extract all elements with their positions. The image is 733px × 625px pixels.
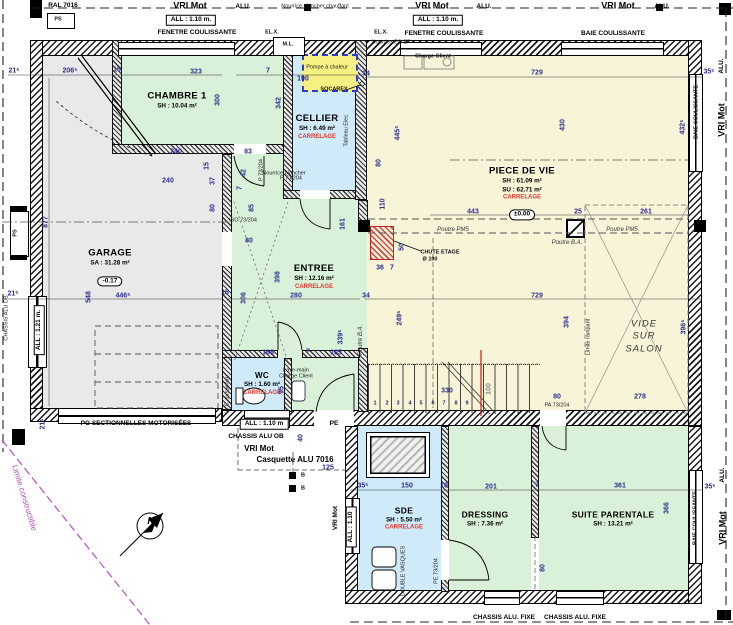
small-label: Ø 100 xyxy=(423,257,438,263)
dimension-label: 35⁵ xyxy=(704,484,715,491)
dimension-label: 300 xyxy=(215,94,222,106)
dimension-label: 394 xyxy=(564,316,571,328)
room-area-text: SH : 13.21 m² xyxy=(572,520,655,528)
dimension-label: 7 xyxy=(390,265,394,272)
dimension-label: 339⁵ xyxy=(338,330,345,345)
dimension-label: 7 xyxy=(237,186,244,190)
small-label: Charge Client xyxy=(279,374,313,380)
room-label-suite-parentale: SUITE PARENTALE SH : 13.21 m² xyxy=(572,509,655,528)
room-area-text: SA : 31.28 m² xyxy=(88,260,132,268)
room-label-wc: WC SH : 1.60 m² CARRELAGE xyxy=(243,371,281,397)
label: Casquette ALU 7016 xyxy=(256,456,333,464)
room-level-badge: ±0.00 xyxy=(509,210,535,220)
dimension-label: 445⁵ xyxy=(395,126,402,141)
stair-step-number: 5 xyxy=(419,401,422,407)
room-name: SDE xyxy=(385,505,423,516)
dimension-label: 21⁵ xyxy=(40,418,47,429)
room-floor-text: CARRELAGE xyxy=(385,525,423,533)
small-label: ISO 73/204 xyxy=(229,218,257,224)
room-area-text: SH : 12.16 m² xyxy=(294,275,334,283)
dimension-label: 7 xyxy=(266,68,270,75)
window-sill-height-label: ALL : 1.21 m. xyxy=(34,305,45,355)
small-label: Charge Client xyxy=(415,54,451,60)
dimension-label: 105 xyxy=(330,350,342,357)
window-motor-label: VRI Mot xyxy=(415,2,449,11)
dimension-label: 7 xyxy=(306,349,310,356)
room-label-entree: ENTREE SH : 12.16 m² CARRELAGE xyxy=(294,263,334,291)
dimension-label: 50 xyxy=(399,243,406,251)
label: CHASSIS ALU OB xyxy=(228,434,283,441)
small-label: PS xyxy=(54,17,61,23)
dimension-label: 83 xyxy=(244,149,252,156)
boundary-marker-topright xyxy=(719,3,731,15)
label: CHASSIS ALU. FIXE xyxy=(544,615,606,622)
small-label: Pompe à chaleur xyxy=(306,65,348,71)
dimension-label: 80 xyxy=(376,159,383,167)
dimension-label: 240 xyxy=(162,178,174,185)
dimension-label: 396⁵ xyxy=(681,320,688,335)
room-floor-text: CARRELAGE xyxy=(294,283,334,291)
beam-label: Poutre B.A. xyxy=(552,240,583,246)
room-floor-text: CARRELAGE xyxy=(243,389,281,397)
dimension-label: 729 xyxy=(531,70,543,77)
wall-south xyxy=(345,590,702,604)
window-sill-height-label: ALL : 1.10 m. xyxy=(166,15,216,26)
dimension-label: 150 xyxy=(401,483,413,490)
small-label: CHUTE ETAGE xyxy=(420,250,459,256)
small-label: Limite rampant xyxy=(586,319,592,355)
dimension-label: 729 xyxy=(531,293,543,300)
room-label-dressing: DRESSING SH : 7.36 m² xyxy=(462,509,509,528)
small-label: Nourrice plancher chauffant xyxy=(281,4,348,10)
window-fixed-south-2 xyxy=(556,591,604,605)
door-gap-sde-dressing xyxy=(441,540,449,580)
room-name: CELLIER xyxy=(296,113,339,125)
label: ALU. xyxy=(476,4,491,11)
dimension-label: 36 xyxy=(376,265,384,272)
dimension-label: 7 xyxy=(535,482,539,489)
dimension-label: 80 xyxy=(553,394,561,401)
dimension-label: 35⁵ xyxy=(357,483,368,490)
vide-sur-salon-label: VIDE SUR SALON xyxy=(625,318,662,355)
room-area-text: SH : 1.60 m² xyxy=(243,381,281,389)
label: PE xyxy=(330,421,339,428)
room-name: WC xyxy=(243,371,281,381)
dimension-label: 278 xyxy=(634,394,646,401)
dimension-label: 80 xyxy=(210,204,217,212)
limite-constructible-line xyxy=(2,440,150,625)
dimension-label: 161 xyxy=(340,218,347,230)
small-label: B xyxy=(301,486,305,492)
vide-line: SUR xyxy=(625,331,662,343)
room-area-text: SH : 5.50 m² xyxy=(385,517,423,525)
label: ALU. xyxy=(720,467,727,482)
small-label: DOUBLE VASQUES xyxy=(401,546,407,596)
dimension-label: 15 xyxy=(221,290,229,297)
stair-step-number: 7 xyxy=(442,401,445,407)
dimension-label: 15 xyxy=(113,67,121,74)
dimension-label: 446⁵ xyxy=(116,293,131,300)
dimension-label: 877 xyxy=(43,216,50,228)
room-level-badge: -0.17 xyxy=(98,276,123,286)
room-name: GARAGE xyxy=(88,247,132,259)
dimension-label: 34 xyxy=(362,71,370,78)
dimension-label: 398 xyxy=(275,271,282,283)
dimension-label: 100 xyxy=(486,383,493,395)
boundary-marker-bottomright xyxy=(717,610,731,620)
dimension-label: 25 xyxy=(574,209,582,216)
room-name: SUITE PARENTALE xyxy=(572,509,655,520)
small-label: PS xyxy=(13,229,19,236)
room-name: CHAMBRE 1 xyxy=(147,91,206,103)
room-label-cellier: CELLIER SH : 6.49 m² CARRELAGE xyxy=(296,113,339,141)
door-gap-cellier xyxy=(300,190,330,199)
room-area-text: SH : 10.04 m² xyxy=(147,103,206,111)
dimension-label: 168 xyxy=(262,350,274,357)
small-label: W.C. suspendu xyxy=(225,375,231,412)
window-chambre xyxy=(118,42,235,56)
small-label: EL.X. xyxy=(374,30,388,36)
dimension-label: 35⁵ xyxy=(703,69,714,76)
dimension-label: 110 xyxy=(380,198,387,209)
room-label-piece-de-vie: PIECE DE VIE SH : 61.09 m² SU : 62.71 m²… xyxy=(489,165,555,222)
room-label-garage: GARAGE SA : 31.28 m² -0.17 xyxy=(88,247,132,288)
dimension-label: 95 xyxy=(279,386,286,394)
window-motor-label: VRI Mot xyxy=(601,2,635,11)
stair-step-number: 6 xyxy=(431,401,434,407)
dimension-label: 323 xyxy=(190,69,202,76)
stair-step-number: 1 xyxy=(373,401,376,407)
limit-label: Limite constructible xyxy=(10,464,38,532)
dimension-label: 21⁵ xyxy=(8,68,19,75)
label: ALU. xyxy=(654,4,669,11)
small-label: PE 73/204 xyxy=(434,558,440,584)
label: FENETRE COULISSANTE xyxy=(158,30,237,37)
dimension-label: 342 xyxy=(276,97,283,109)
dimension-label: 40 xyxy=(298,434,305,442)
stair-step-number: 8 xyxy=(454,401,457,407)
room-name: PIECE DE VIE xyxy=(489,165,555,177)
dimension-label: 366 xyxy=(664,502,671,514)
room-label-chambre1: CHAMBRE 1 SH : 10.04 m² xyxy=(147,91,206,112)
small-label: M.L. xyxy=(283,42,294,48)
dimension-label: 10 xyxy=(440,483,448,490)
section-b-markers xyxy=(289,472,296,492)
dimension-label: 201 xyxy=(485,484,497,491)
label: CHASSIS ALU. FIXE xyxy=(473,615,535,622)
dimension-label: 37 xyxy=(210,177,217,185)
vide-line: VIDE xyxy=(625,318,662,330)
vide-line: SALON xyxy=(625,343,662,355)
small-label: BAIE COULISSANTE xyxy=(693,491,699,545)
room-area-text: SH : 6.49 m² xyxy=(296,125,339,133)
chute-etage-box xyxy=(370,226,394,260)
room-floor-text: CARRELAGE xyxy=(489,194,555,202)
room-name: DRESSING xyxy=(462,509,509,520)
label: ALU. xyxy=(719,58,726,73)
dimension-label: 249⁵ xyxy=(397,311,404,326)
dimension-label: 306 xyxy=(241,292,248,304)
dimension-label: 548 xyxy=(86,291,93,303)
window-fixed-south-1 xyxy=(484,591,520,605)
stair-step-number: 2 xyxy=(385,401,388,407)
dimension-label: 330 xyxy=(441,388,453,395)
door-gap-suite xyxy=(540,410,566,426)
small-label: B xyxy=(301,473,305,479)
beam-label: Poutre PM5 xyxy=(437,227,469,233)
small-label: BAIE COULISSANTE xyxy=(694,85,700,139)
room-area-text: SH : 61.09 m² xyxy=(489,178,555,186)
dimension-label: 206⁵ xyxy=(63,68,78,75)
dimension-label: 261 xyxy=(640,209,652,216)
dimension-label: 430 xyxy=(560,119,567,131)
post-east-wall xyxy=(694,220,706,232)
label: ALU. xyxy=(235,4,250,11)
label: PG SECTIONNELLES MOTORISÉES xyxy=(81,421,192,428)
north-letter: N xyxy=(147,517,154,527)
beam-label: Poutre B.A. xyxy=(358,325,364,356)
dimension-label: 15 xyxy=(204,162,211,170)
label: RAL 7016 xyxy=(48,3,78,10)
small-label: Nourrice EC-EF xyxy=(372,40,411,46)
small-label: Tableau Elec. xyxy=(344,113,350,146)
room-area-text-2: SU : 62.71 m² xyxy=(489,186,555,194)
room-floor-text: CARRELAGE xyxy=(296,133,339,141)
door-gap-garage-entree xyxy=(222,232,232,266)
window-sill-height-label: ALL : 1.10 xyxy=(346,507,357,548)
dimension-label: 190 xyxy=(297,76,309,83)
dimension-label: 432⁵ xyxy=(680,120,687,135)
stair-step-number: 3 xyxy=(396,401,399,407)
small-label: CHASSIS ALU DB xyxy=(4,295,10,340)
room-label-sde: SDE SH : 5.50 m² CARRELAGE xyxy=(385,505,423,532)
window-sill-height-label: ALL : 1.10 m. xyxy=(413,15,463,26)
dimension-label: 42 xyxy=(241,169,248,177)
post-poutre-ba xyxy=(566,219,585,238)
window-baie-north xyxy=(561,42,664,56)
label: BAIE COULISSANTE xyxy=(581,31,645,38)
dimension-label: 34 xyxy=(362,293,370,300)
window-motor-label: VRI Mot xyxy=(718,103,727,137)
small-label: PA 73/204 xyxy=(545,403,570,409)
room-area-text: SH : 7.36 m² xyxy=(462,520,509,528)
north-compass xyxy=(120,513,163,556)
room-name: ENTREE xyxy=(294,263,334,275)
boundary-marker-topleft xyxy=(30,0,42,18)
partition-garage-entree xyxy=(222,154,232,410)
dimension-label: 85 xyxy=(249,204,256,212)
boundary-marker-left xyxy=(12,429,25,445)
dimension-label: 443 xyxy=(467,209,479,216)
label: FENETRE COULISSANTE xyxy=(405,31,484,38)
dimension-label: 240 xyxy=(170,149,182,156)
dimension-label: 80 xyxy=(245,238,253,245)
window-motor-label: VRI Mot xyxy=(719,511,728,545)
stair-step-number: 9 xyxy=(465,401,468,407)
label: VRI Mot xyxy=(333,506,340,530)
floor-plan: GARAGE SA : 31.28 m² -0.17 CHAMBRE 1 SH … xyxy=(0,0,733,625)
dimension-label: 361 xyxy=(614,483,626,490)
window-motor-label: VRI Mot xyxy=(173,2,207,11)
label: VRI Mot xyxy=(244,445,274,453)
beam-label: Poutre PM5 xyxy=(606,227,638,233)
shower-tray xyxy=(366,432,430,478)
small-label: EL.X. xyxy=(265,30,279,36)
window-sill-height-label: ALL : 1.10 m xyxy=(240,419,289,430)
dimension-label: 80 xyxy=(540,564,547,572)
small-label: SOCAREX xyxy=(320,87,347,93)
post-entree-pdv xyxy=(358,220,370,232)
dimension-label: 280 xyxy=(290,293,302,300)
stair-step-number: 4 xyxy=(408,401,411,407)
dimension-label: 125 xyxy=(322,465,334,472)
partition-garage-chambre xyxy=(112,40,122,152)
small-label: P 73/204 xyxy=(280,176,302,182)
